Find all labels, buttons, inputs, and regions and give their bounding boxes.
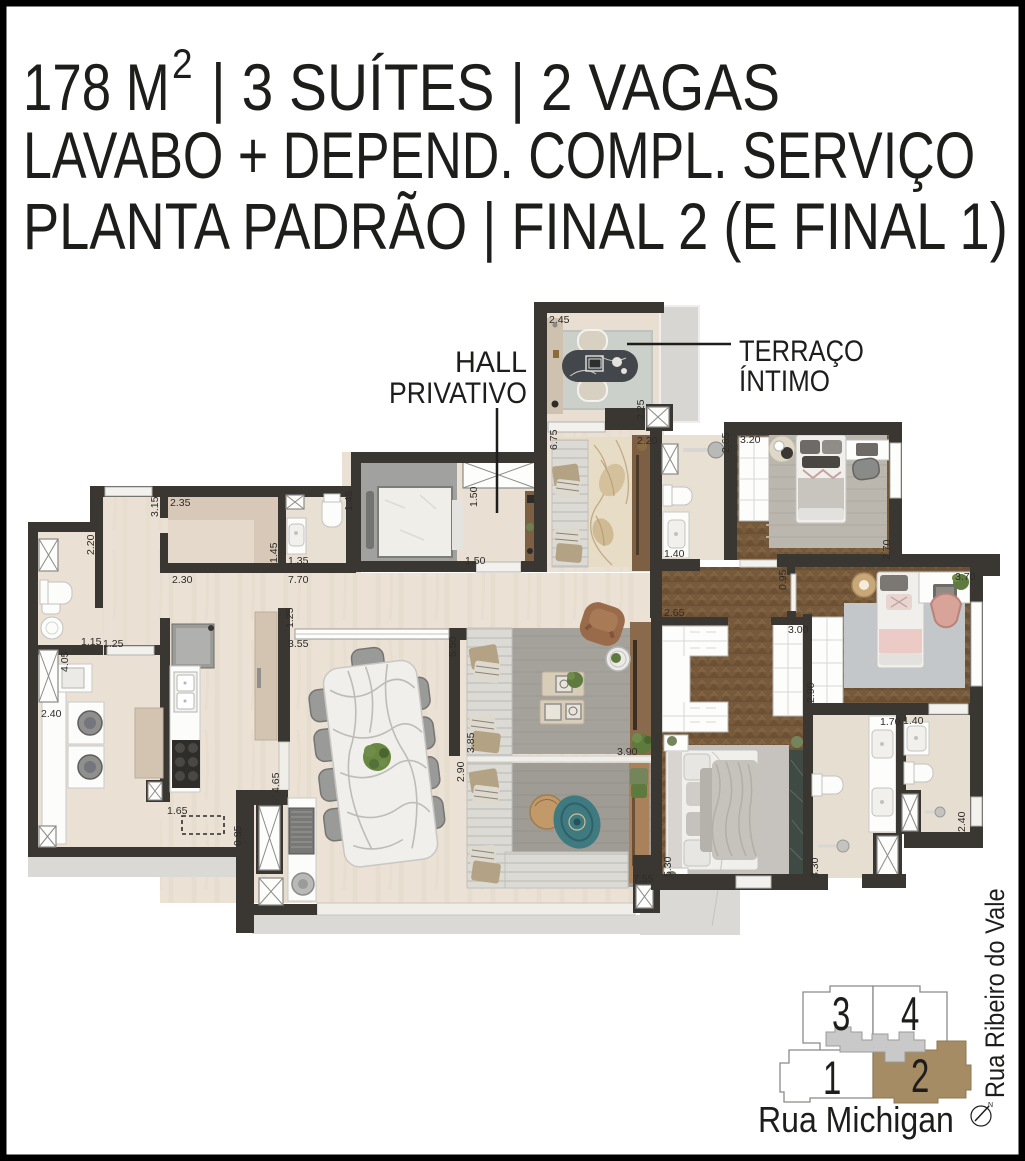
svg-text:2.40: 2.40 bbox=[41, 708, 62, 720]
svg-text:2: 2 bbox=[172, 41, 193, 88]
svg-text:N: N bbox=[988, 1102, 993, 1109]
svg-text:2.20: 2.20 bbox=[85, 534, 97, 555]
svg-text:2.25: 2.25 bbox=[635, 399, 647, 420]
svg-text:6.75: 6.75 bbox=[548, 429, 560, 450]
svg-text:1.40: 1.40 bbox=[664, 548, 685, 560]
svg-text:1.70: 1.70 bbox=[880, 716, 901, 728]
svg-text:3.00: 3.00 bbox=[788, 624, 809, 636]
svg-text:4.05: 4.05 bbox=[59, 651, 71, 672]
svg-text:2.90: 2.90 bbox=[455, 761, 467, 782]
svg-text:3.85: 3.85 bbox=[465, 732, 477, 753]
svg-text:178 M: 178 M bbox=[23, 50, 170, 124]
svg-text:2.45: 2.45 bbox=[549, 314, 570, 326]
svg-text:1.65: 1.65 bbox=[167, 805, 188, 817]
svg-text:4.65: 4.65 bbox=[270, 772, 282, 793]
svg-text:2.65: 2.65 bbox=[664, 607, 685, 619]
svg-text:PRIVATIVO: PRIVATIVO bbox=[389, 377, 527, 411]
svg-text:1.25: 1.25 bbox=[284, 607, 296, 628]
svg-text:3.20: 3.20 bbox=[740, 434, 761, 446]
svg-text:PLANTA PADRÃO | FINAL 2 (E FIN: PLANTA PADRÃO | FINAL 2 (E FINAL 1) bbox=[23, 189, 1008, 263]
svg-text:Rua Ribeiro do Vale: Rua Ribeiro do Vale bbox=[981, 888, 1011, 1098]
svg-text:3.30: 3.30 bbox=[809, 857, 821, 878]
svg-text:1.15: 1.15 bbox=[81, 636, 102, 648]
svg-text:2.70: 2.70 bbox=[881, 539, 893, 560]
svg-text:HALL: HALL bbox=[455, 345, 527, 379]
svg-text:2.30: 2.30 bbox=[172, 574, 193, 586]
svg-text:1: 1 bbox=[823, 1051, 841, 1104]
svg-text:2.40: 2.40 bbox=[956, 811, 968, 832]
svg-text:1.35: 1.35 bbox=[288, 555, 309, 567]
svg-text:0.95: 0.95 bbox=[777, 569, 789, 590]
svg-text:7.55: 7.55 bbox=[633, 873, 654, 885]
svg-text:1.45: 1.45 bbox=[268, 542, 280, 563]
svg-text:3: 3 bbox=[832, 987, 850, 1040]
svg-text:2.65: 2.65 bbox=[720, 432, 732, 453]
svg-text:1.50: 1.50 bbox=[465, 555, 486, 567]
svg-text:7.70: 7.70 bbox=[288, 574, 309, 586]
svg-text:1.45: 1.45 bbox=[343, 490, 355, 511]
svg-text:2.35: 2.35 bbox=[170, 497, 191, 509]
svg-text:5.30: 5.30 bbox=[662, 856, 674, 877]
svg-text:| 3 SUÍTES | 2 VAGAS: | 3 SUÍTES | 2 VAGAS bbox=[211, 51, 780, 125]
svg-text:1.50: 1.50 bbox=[468, 486, 480, 507]
svg-text:4: 4 bbox=[901, 987, 919, 1040]
svg-text:LAVABO + DEPEND. COMPL. SERVIÇ: LAVABO + DEPEND. COMPL. SERVIÇO bbox=[23, 118, 975, 192]
svg-text:5.50: 5.50 bbox=[447, 636, 459, 657]
svg-text:3.55: 3.55 bbox=[288, 638, 309, 650]
svg-text:2: 2 bbox=[911, 1049, 929, 1102]
svg-text:1.25: 1.25 bbox=[103, 638, 124, 650]
svg-text:1.40: 1.40 bbox=[903, 715, 924, 727]
svg-text:3.15: 3.15 bbox=[149, 496, 161, 517]
svg-text:TERRAÇO: TERRAÇO bbox=[739, 334, 864, 367]
svg-text:2.90: 2.90 bbox=[805, 682, 817, 703]
svg-text:3.70: 3.70 bbox=[955, 571, 976, 583]
svg-text:3.90: 3.90 bbox=[617, 746, 638, 758]
svg-text:Rua Michigan: Rua Michigan bbox=[758, 1100, 954, 1140]
svg-text:0.85: 0.85 bbox=[232, 825, 244, 846]
svg-text:2.20: 2.20 bbox=[637, 435, 658, 447]
svg-text:ÍNTIMO: ÍNTIMO bbox=[739, 364, 830, 397]
